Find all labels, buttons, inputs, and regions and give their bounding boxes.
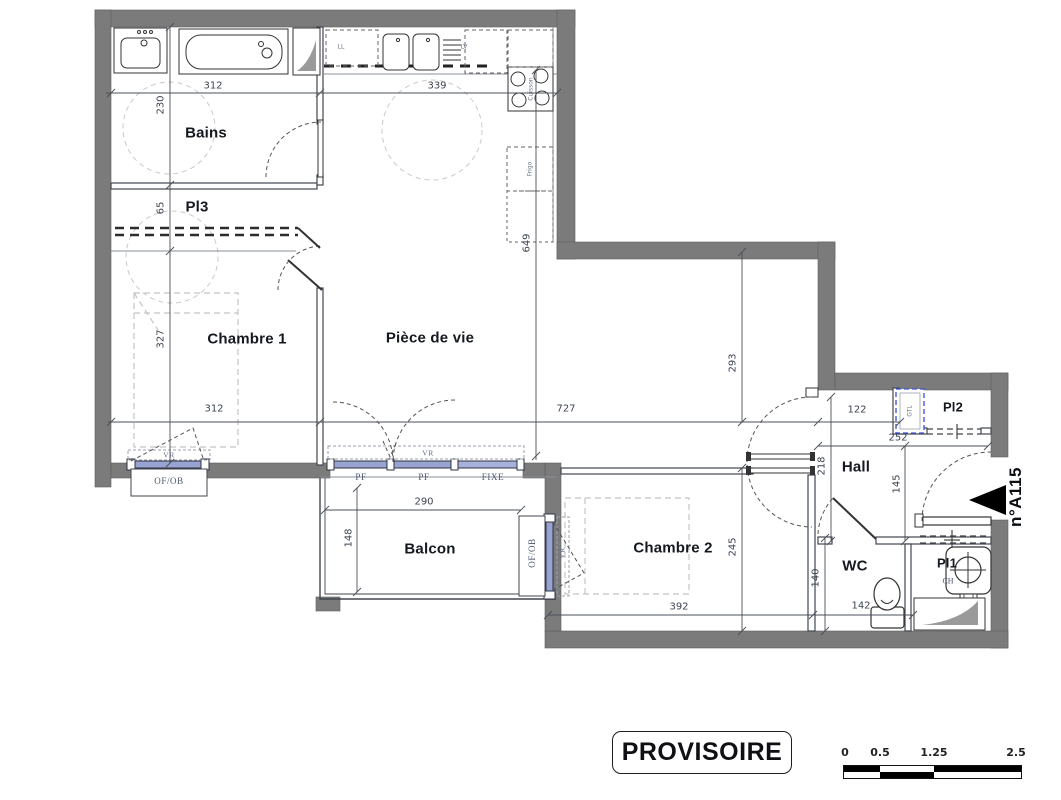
closet-rod-pl3 (115, 228, 298, 235)
room-label-wc: WC (842, 558, 867, 575)
duct-top (293, 28, 320, 75)
door-entrance (915, 452, 991, 527)
dim-hall-niche-width: 122 (847, 405, 866, 416)
scalebar-seg (844, 772, 880, 778)
room-label-pl2: Pl2 (943, 400, 963, 415)
duct-bottom-right (914, 598, 985, 630)
fridge-label: Frigo (527, 162, 534, 177)
dim-pl3-depth: 65 (156, 202, 167, 215)
scalebar-tick-0: 0 (841, 746, 849, 759)
window-ofob-label-2: OF/OB (527, 538, 537, 568)
room-label-pl3: Pl3 (185, 199, 208, 216)
window-vr-label-1: VR (163, 451, 175, 460)
cooktop-label: Cuisson (528, 77, 535, 100)
room-label-pl1: Pl1 (937, 556, 957, 571)
dim-wc-depth: 140 (811, 568, 822, 587)
dim-chambre2-depth: 245 (728, 537, 739, 556)
dim-balcon-depth: 148 (344, 528, 355, 547)
washing-machine-label: LL (338, 44, 345, 51)
door-pl3 (298, 228, 320, 248)
dish-drainer (443, 40, 461, 60)
dim-living-east-depth: 293 (728, 353, 739, 372)
room-label-balcon: Balcon (404, 541, 455, 558)
unit-number-label: n°A115 (1006, 467, 1026, 527)
room-label-bains: Bains (185, 125, 227, 142)
water-heater-label: CH (942, 577, 953, 586)
gtl-label: GTL (907, 405, 914, 416)
dim-living-depth: 649 (522, 233, 533, 252)
room-label-piece-de-vie: Pièce de vie (386, 330, 474, 347)
dim-bains-width: 312 (203, 81, 222, 92)
entrance-arrow (969, 485, 1006, 515)
scalebar-tick-25: 2.5 (1006, 746, 1026, 759)
door-chambre1 (278, 246, 322, 290)
kitchen-counter (324, 30, 507, 73)
door-bains (266, 120, 323, 177)
window-fixe-label: FIXE (482, 472, 504, 482)
floor-plan-page: Bains Pl3 Chambre 1 Pièce de vie Balcon … (0, 0, 1061, 800)
dim-living-width: 727 (556, 404, 575, 415)
dim-hall-width: 252 (888, 433, 907, 444)
scalebar-seg (934, 772, 1021, 778)
thin-lines (111, 27, 557, 477)
floor-plan-drawing (0, 0, 1061, 800)
provisoire-stamp: PROVISOIRE (612, 731, 792, 774)
dim-kitchen-width: 339 (427, 81, 446, 92)
bathroom-sink (114, 28, 167, 73)
window-vr-label-3: VR (558, 547, 567, 559)
bed-chambre1 (134, 293, 238, 447)
sliding-door-chambre2 (746, 452, 815, 475)
room-label-chambre1: Chambre 1 (207, 331, 286, 348)
dim-chambre1-depth: 327 (156, 329, 167, 348)
window-vr-label-2: VR (422, 449, 434, 458)
bathtub (179, 29, 288, 74)
dim-chambre2-width: 392 (669, 602, 688, 613)
scalebar-tick-125: 1.25 (920, 746, 947, 759)
dim-wc-width: 142 (851, 601, 870, 612)
washing-machine-slot (326, 30, 378, 66)
dishwasher-label: LV (461, 44, 468, 51)
scalebar-tick-05: 0.5 (870, 746, 890, 759)
windows (127, 400, 584, 599)
room-label-chambre2: Chambre 2 (633, 540, 712, 557)
turning-circles (123, 80, 482, 303)
window-ofob-label-1: OF/OB (154, 476, 184, 486)
dim-chambre1-width: 312 (204, 404, 223, 415)
provisoire-stamp-text: PROVISOIRE (622, 738, 783, 767)
dim-hall-depth: 145 (892, 474, 903, 493)
room-label-hall: Hall (842, 459, 870, 476)
scalebar-seg (880, 772, 934, 778)
dim-bains-depth: 230 (156, 95, 167, 114)
window-pf-label-1: PF (355, 472, 366, 482)
window-pf-label-2: PF (418, 472, 429, 482)
closet-door-pl2 (927, 424, 981, 439)
dim-balcon-width: 290 (414, 497, 433, 508)
scale-bar (843, 765, 1022, 779)
dim-hall-opening-depth: 218 (817, 456, 828, 475)
door-wc (818, 498, 876, 541)
toilet (871, 578, 904, 628)
